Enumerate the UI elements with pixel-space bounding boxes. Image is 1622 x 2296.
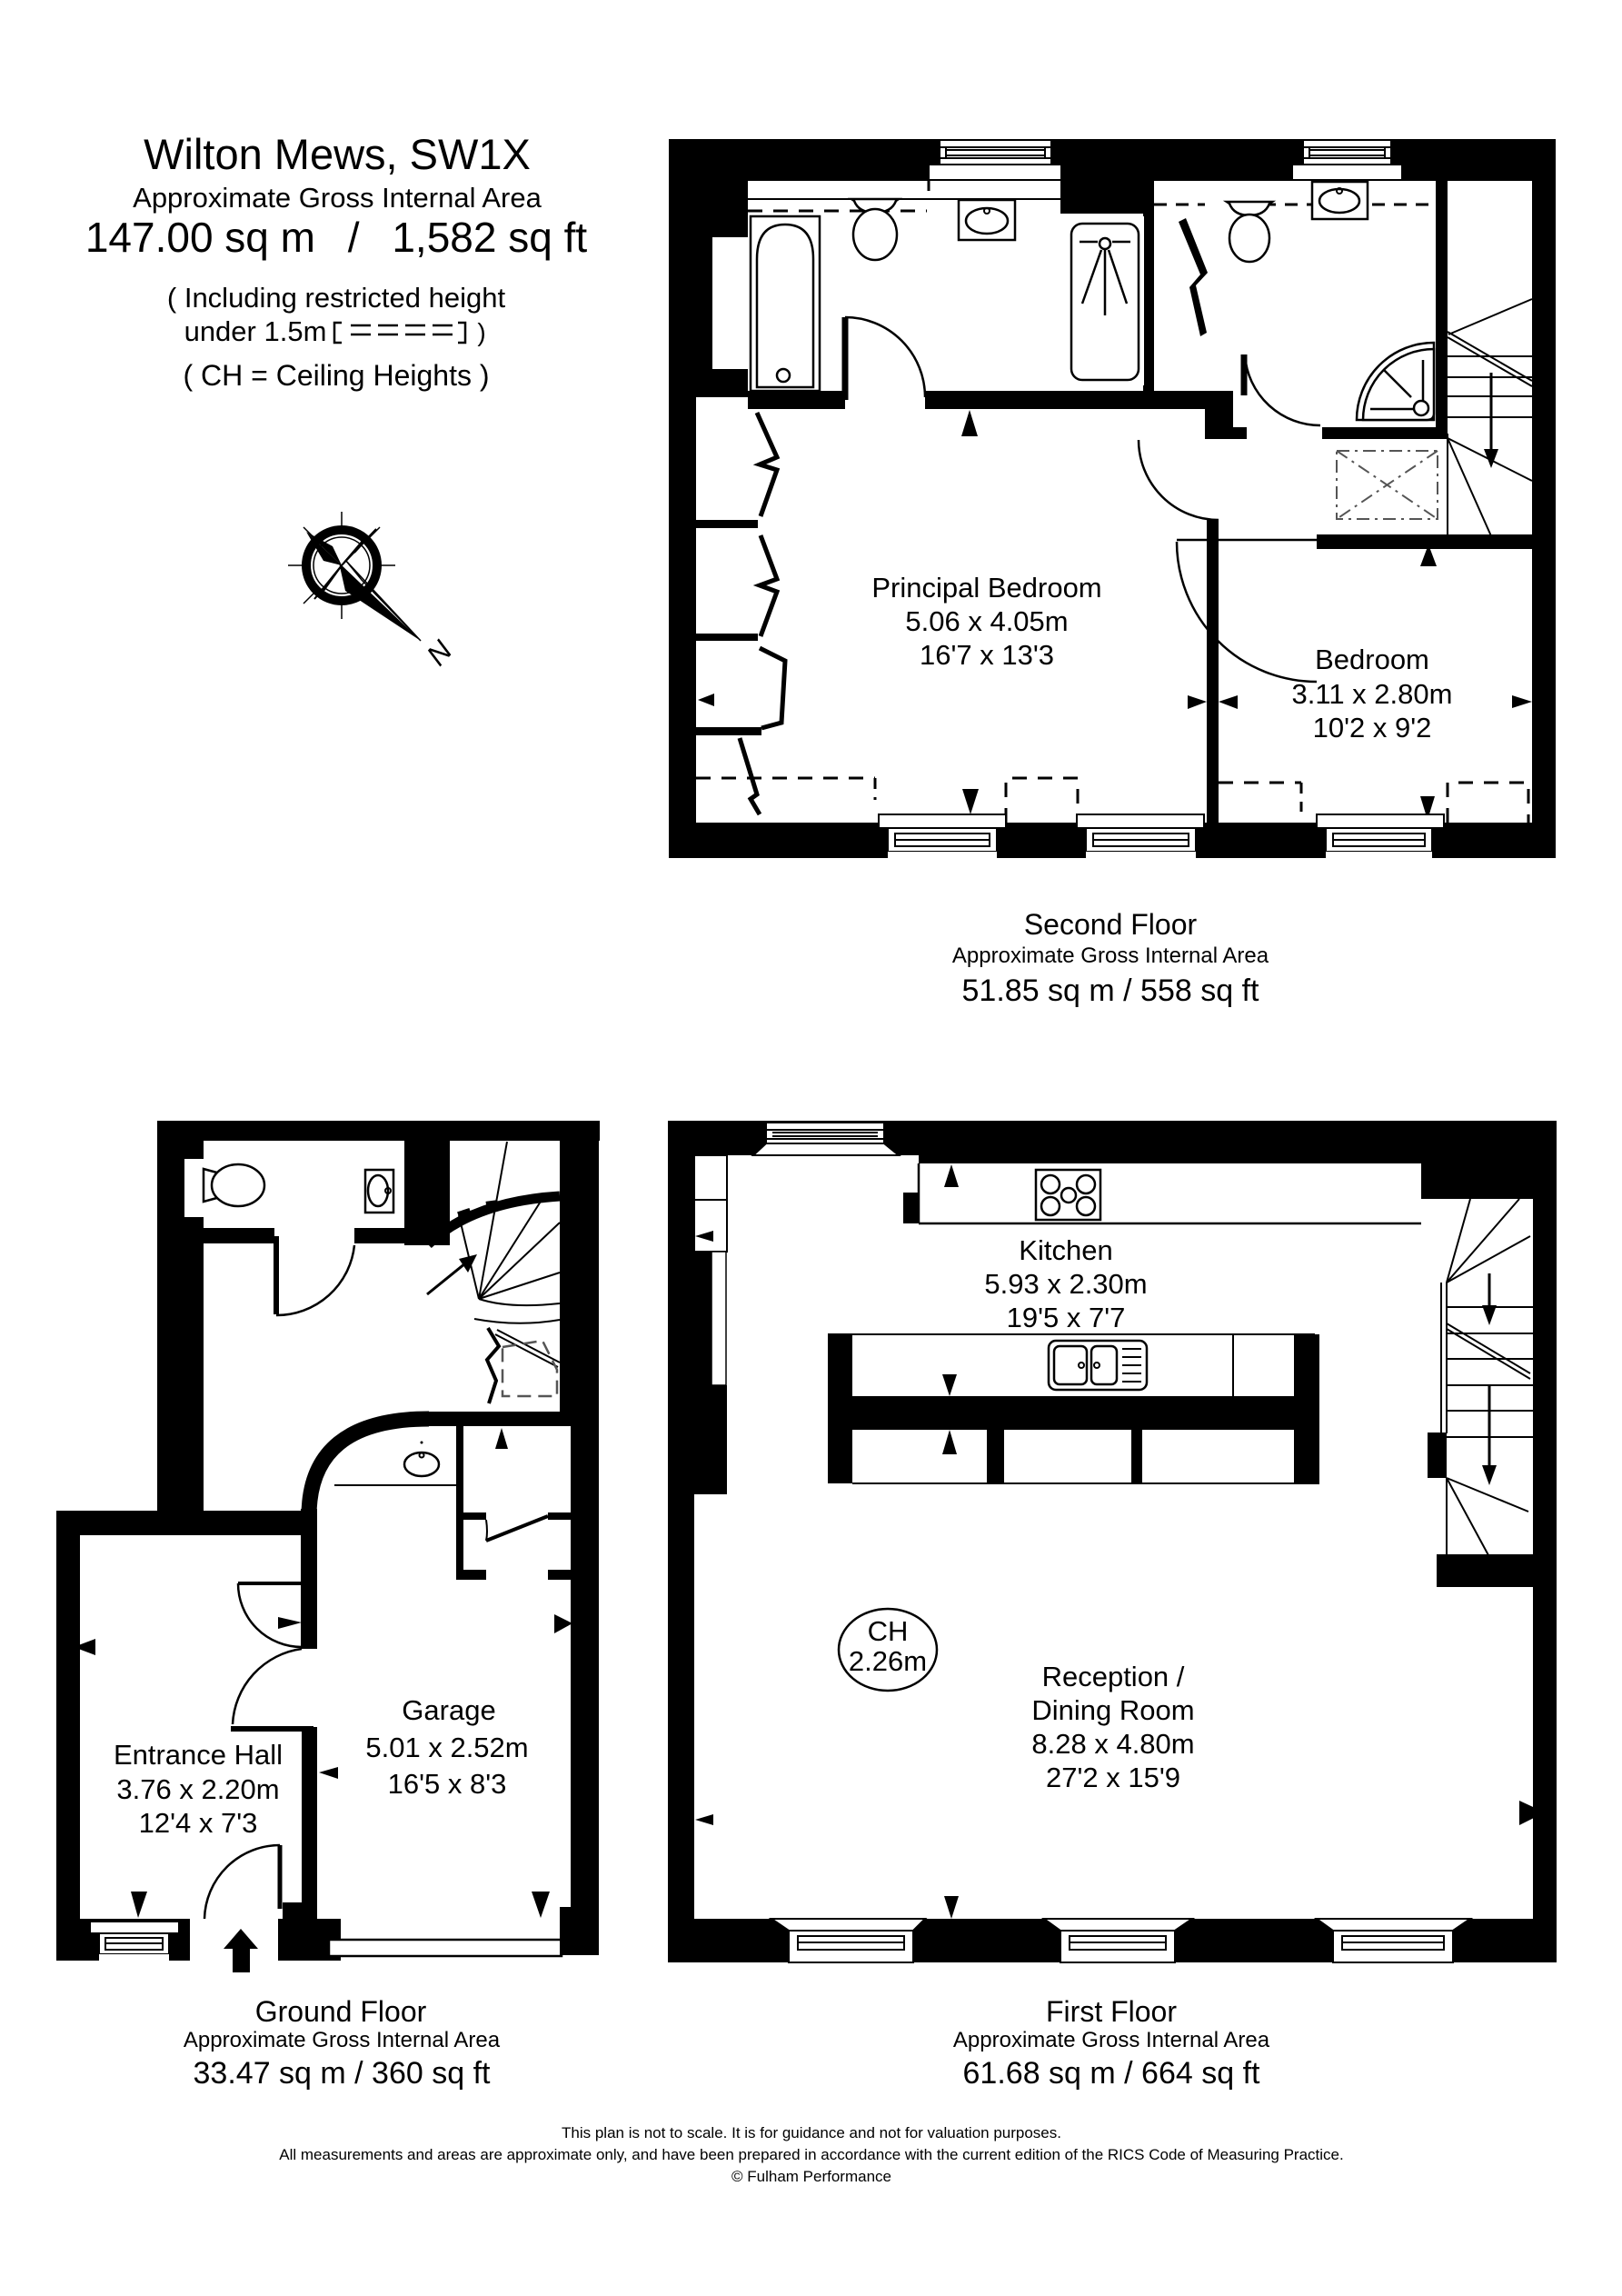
svg-text:Garage: Garage [402, 1694, 495, 1726]
svg-text:Approximate Gross Internal Are: Approximate Gross Internal Area [133, 182, 542, 214]
svg-text:16'5 x 8'3: 16'5 x 8'3 [388, 1768, 507, 1800]
svg-text:All measurements and areas are: All measurements and areas are approxima… [279, 2146, 1343, 2163]
svg-text:under 1.5m: under 1.5m [184, 315, 327, 347]
svg-text:( Including restricted height: ( Including restricted height [167, 282, 506, 314]
svg-text:CH: CH [868, 1615, 909, 1647]
svg-text:147.00 sq m / 1,582 sq ft: 147.00 sq m / 1,582 sq ft [85, 214, 588, 261]
svg-text:Reception /: Reception / [1042, 1661, 1185, 1692]
svg-text:Kitchen: Kitchen [1019, 1234, 1112, 1266]
svg-text:51.85 sq m / 558 sq ft: 51.85 sq m / 558 sq ft [962, 973, 1260, 1008]
svg-text:8.28 x 4.80m: 8.28 x 4.80m [1031, 1728, 1194, 1760]
svg-text:Dining Room: Dining Room [1031, 1694, 1194, 1726]
svg-text:): ) [477, 318, 485, 346]
svg-text:16'7 x 13'3: 16'7 x 13'3 [920, 639, 1054, 671]
svg-text:19'5 x 7'7: 19'5 x 7'7 [1007, 1302, 1126, 1333]
svg-text:Approximate Gross Internal Are: Approximate Gross Internal Area [184, 2028, 501, 2052]
svg-text:© Fulham Performance: © Fulham Performance [731, 2168, 891, 2185]
svg-text:Approximate Gross Internal Are: Approximate Gross Internal Area [953, 2028, 1270, 2052]
svg-text:10'2 x 9'2: 10'2 x 9'2 [1313, 712, 1432, 744]
svg-text:61.68 sq m / 664 sq ft: 61.68 sq m / 664 sq ft [963, 2056, 1261, 2091]
svg-text:3.76 x 2.20m: 3.76 x 2.20m [116, 1773, 279, 1805]
svg-text:This plan is not to scale. It: This plan is not to scale. It is for gui… [562, 2124, 1061, 2141]
svg-text:Ground Floor: Ground Floor [255, 1995, 427, 2028]
svg-text:2.26m: 2.26m [849, 1645, 927, 1677]
svg-text:Second Floor: Second Floor [1024, 908, 1198, 941]
svg-text:Wilton Mews, SW1X: Wilton Mews, SW1X [144, 130, 531, 178]
svg-text:5.93 x 2.30m: 5.93 x 2.30m [984, 1268, 1147, 1300]
svg-text:27'2 x 15'9: 27'2 x 15'9 [1046, 1762, 1180, 1793]
svg-text:First Floor: First Floor [1046, 1995, 1177, 2028]
svg-text:( CH = Ceiling Heights ): ( CH = Ceiling Heights ) [184, 359, 490, 392]
svg-text:33.47 sq m / 360 sq ft: 33.47 sq m / 360 sq ft [194, 2056, 492, 2091]
svg-text:5.06 x 4.05m: 5.06 x 4.05m [905, 605, 1068, 637]
svg-text:Approximate Gross Internal Are: Approximate Gross Internal Area [952, 943, 1269, 968]
svg-text:5.01 x 2.52m: 5.01 x 2.52m [365, 1732, 528, 1763]
svg-text:3.11 x 2.80m: 3.11 x 2.80m [1292, 678, 1453, 710]
svg-text:Bedroom: Bedroom [1315, 644, 1429, 675]
svg-text:Entrance Hall: Entrance Hall [114, 1739, 283, 1771]
svg-text:12'4 x 7'3: 12'4 x 7'3 [139, 1807, 258, 1839]
svg-text:Principal Bedroom: Principal Bedroom [871, 572, 1101, 604]
